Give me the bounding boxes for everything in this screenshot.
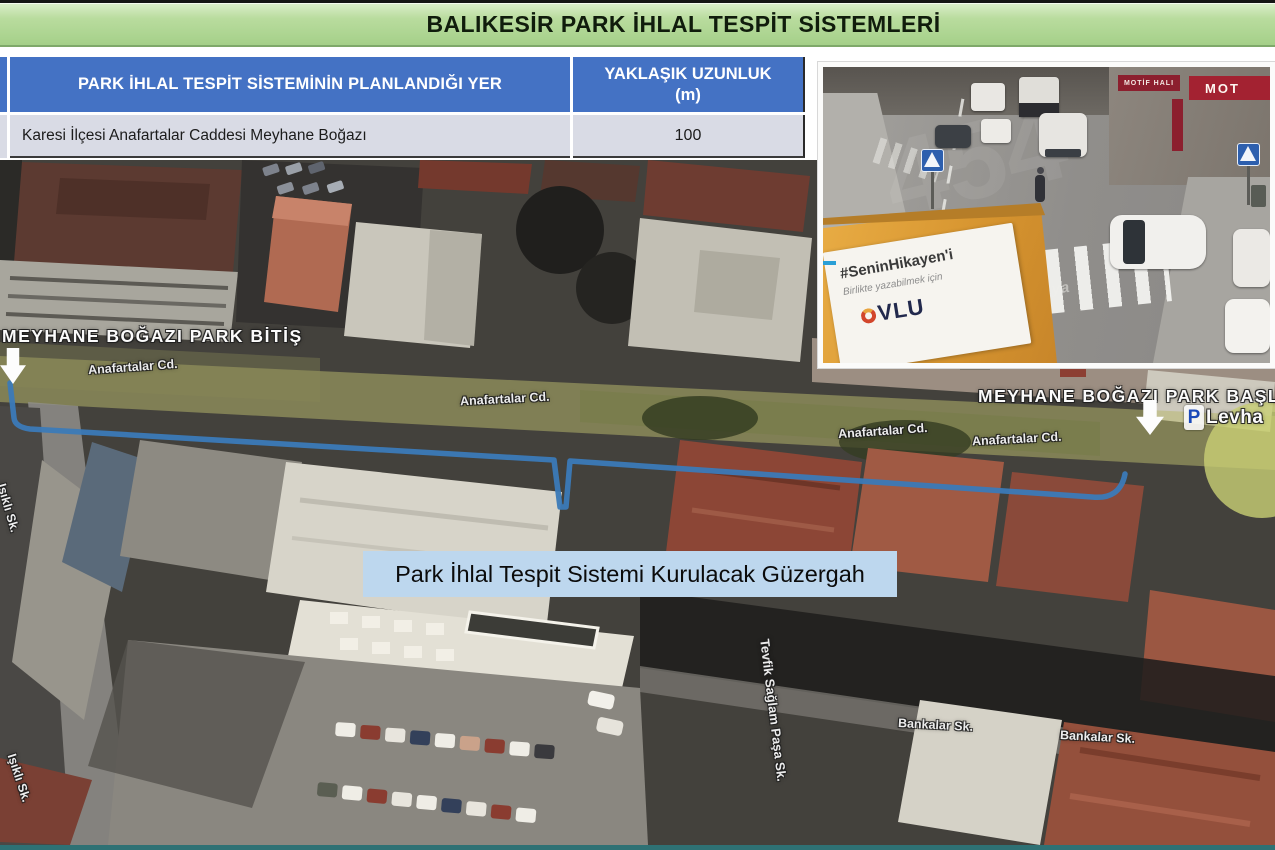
shop-sign-motif-hali: MOTİF HALI: [1118, 75, 1180, 91]
title-bar: BALIKESİR PARK İHLAL TESPİT SİSTEMLERİ: [0, 3, 1275, 47]
crosswalk-sign-icon-left: [921, 149, 944, 172]
crosswalk-sign-icon-right: [1237, 143, 1260, 166]
white-car-windshield: [1123, 220, 1145, 264]
shop-sign-motif: MOT: [1189, 76, 1270, 100]
pedestrian-head: [1037, 167, 1044, 174]
table-row-left-sliver: [0, 115, 7, 158]
table-header-length: YAKLAŞIK UZUNLUK (m): [573, 57, 805, 112]
table-cell-location: Karesi İlçesi Anafartalar Caddesi Meyhan…: [10, 115, 570, 158]
trash-bin: [1251, 185, 1266, 207]
parked-truck: [971, 83, 1005, 111]
map-label-park-start: MEYHANE BOĞAZI PARK BAŞLAN: [978, 386, 1275, 407]
map-label-park-end: MEYHANE BOĞAZI PARK BİTİŞ: [2, 326, 303, 347]
shop-sign-vertical: [1172, 99, 1183, 151]
van-windshield: [1045, 149, 1081, 157]
parking-sign-icon: P: [1184, 405, 1204, 430]
table-cell-length: 100: [573, 115, 805, 158]
route-annotation-label: Park İhlal Tespit Sistemi Kurulacak Güze…: [363, 551, 897, 597]
cctv-street-photo: MOTİF HALI MOT yaya 454 #SeninHikayen'i …: [818, 62, 1275, 368]
table-header-length-line2: (m): [675, 85, 701, 106]
levha-label: Levha: [1206, 407, 1263, 429]
bottom-border: [0, 845, 1275, 850]
sign-pole-right: [1247, 163, 1250, 205]
levha-label-group: P Levha: [1184, 405, 1263, 430]
banner-logo-text: VLU: [876, 294, 926, 327]
white-car-corner: [1225, 299, 1270, 353]
table-header-location: PARK İHLAL TESPİT SİSTEMİNİN PLANLANDIĞI…: [10, 57, 570, 112]
dark-car: [935, 125, 971, 148]
slide: BALIKESİR PARK İHLAL TESPİT SİSTEMLERİ P…: [0, 0, 1275, 850]
table-header-left-sliver: [0, 57, 7, 112]
sign-pole-left: [931, 169, 934, 209]
white-car-right: [1233, 229, 1270, 287]
page-title: BALIKESİR PARK İHLAL TESPİT SİSTEMLERİ: [335, 11, 941, 38]
banner-blue-dash: [823, 261, 836, 265]
pedestrian: [1035, 175, 1045, 202]
pickup-truck: [981, 119, 1011, 143]
table-header-length-line1: YAKLAŞIK UZUNLUK: [604, 64, 771, 85]
banner-logo-ring-icon: [860, 307, 877, 324]
